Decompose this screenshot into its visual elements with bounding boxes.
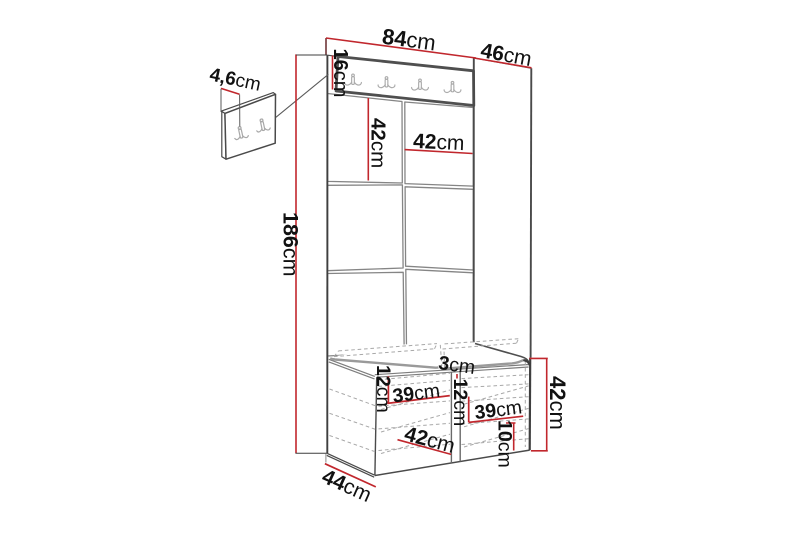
svg-text:4,6cm: 4,6cm bbox=[208, 64, 263, 95]
svg-text:10cm: 10cm bbox=[494, 420, 516, 468]
svg-text:42cm: 42cm bbox=[545, 376, 570, 430]
svg-text:12cm: 12cm bbox=[449, 379, 471, 427]
svg-text:46cm: 46cm bbox=[479, 39, 534, 71]
svg-text:84cm: 84cm bbox=[381, 24, 438, 56]
svg-text:186cm: 186cm bbox=[279, 212, 303, 277]
svg-text:42cm: 42cm bbox=[367, 118, 390, 168]
svg-text:42cm: 42cm bbox=[413, 130, 465, 155]
svg-text:16cm: 16cm bbox=[329, 49, 351, 98]
